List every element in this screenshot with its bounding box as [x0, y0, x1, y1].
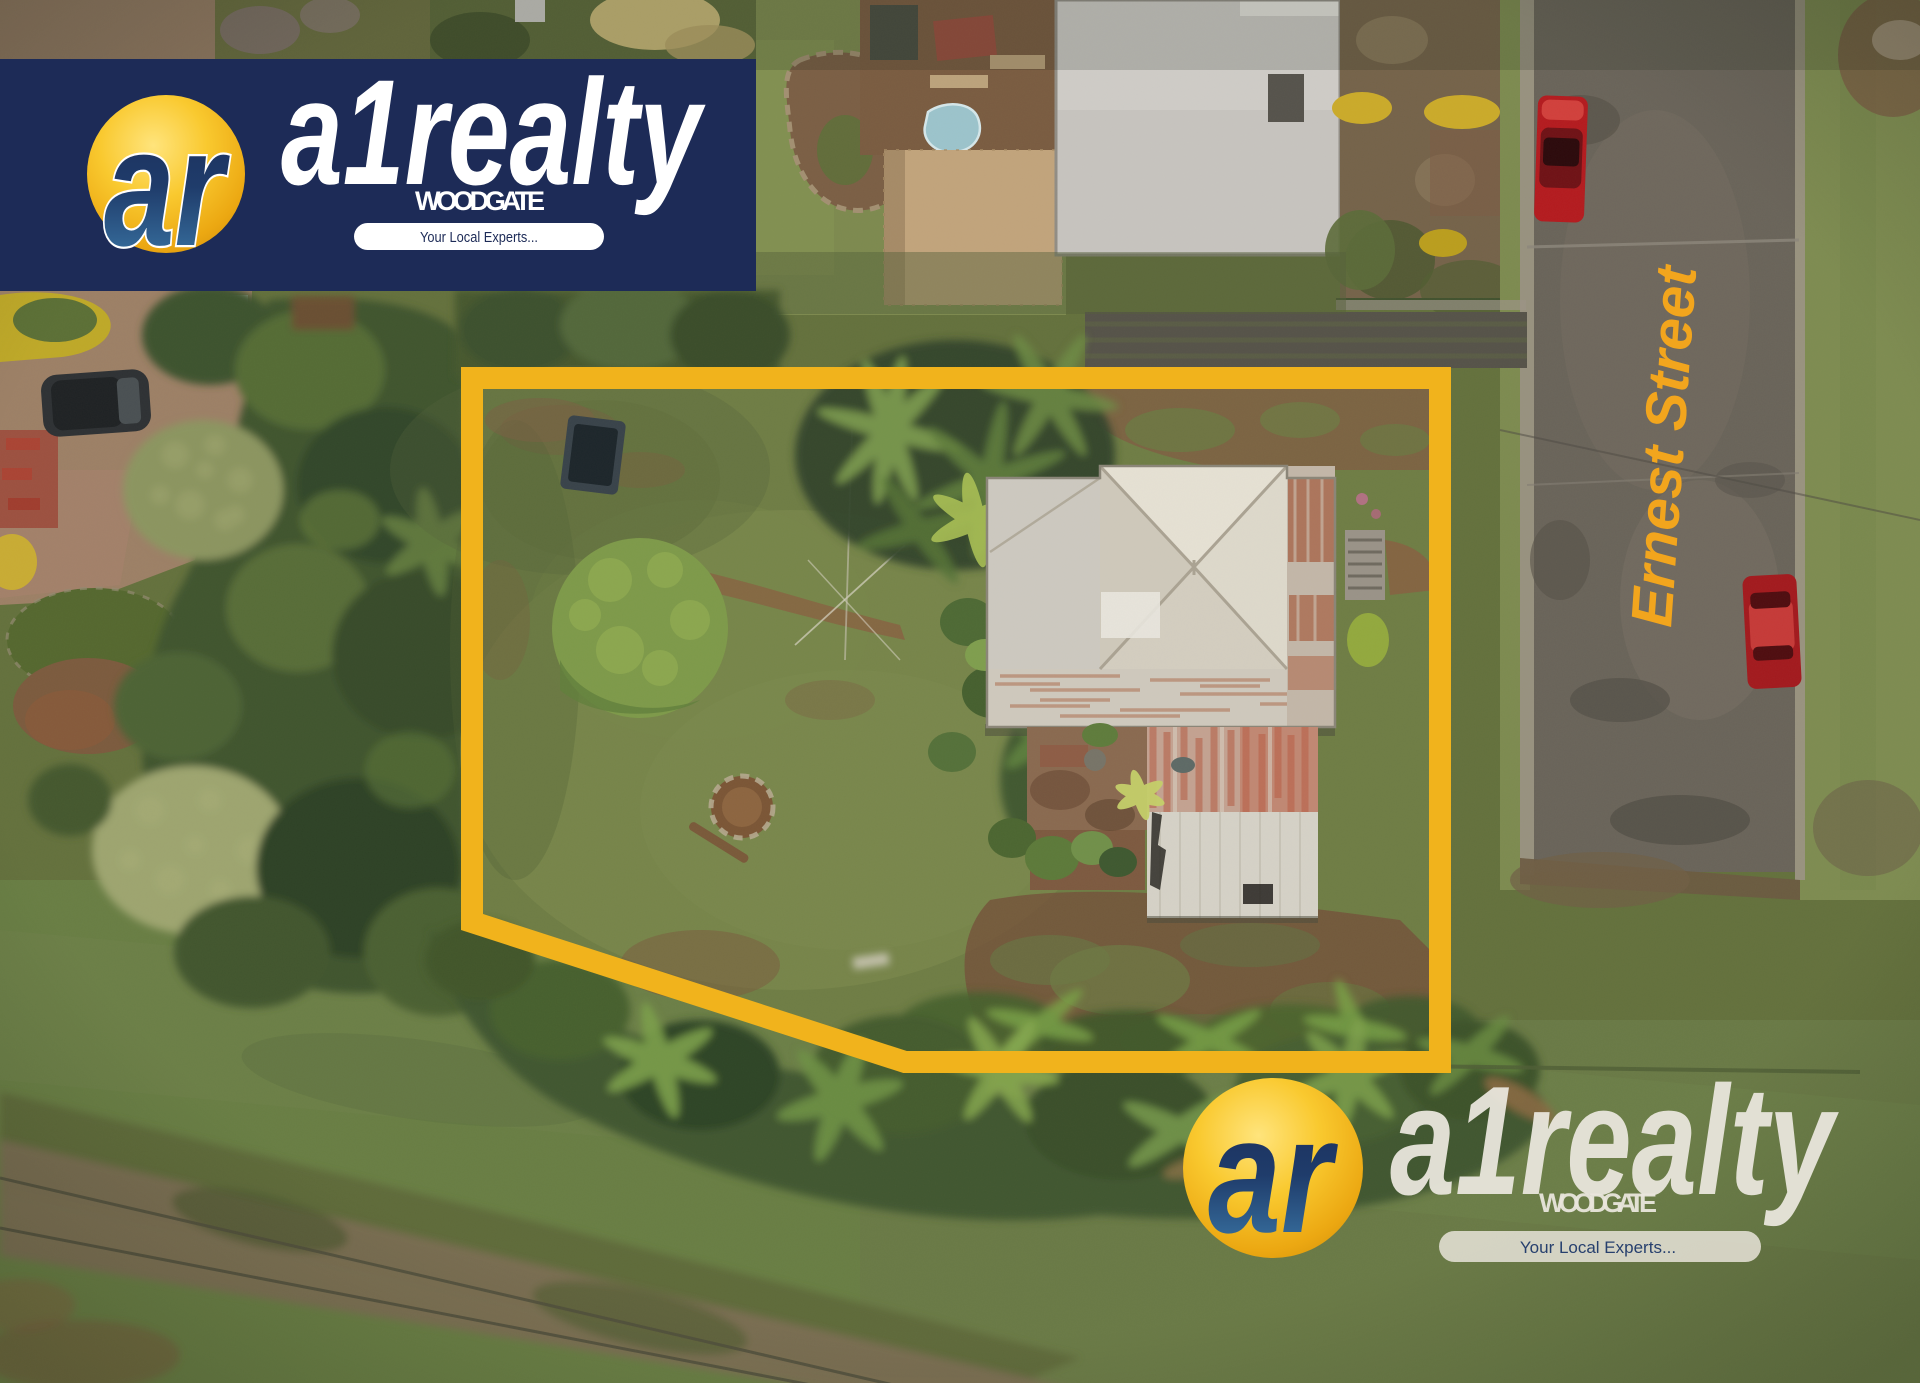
svg-text:Your Local Experts...: Your Local Experts... — [1520, 1238, 1676, 1257]
svg-text:ar: ar — [104, 93, 231, 281]
svg-text:WOODGATE: WOODGATE — [415, 186, 545, 216]
svg-text:ar: ar — [1208, 1083, 1338, 1267]
svg-text:Your Local Experts...: Your Local Experts... — [420, 229, 538, 246]
svg-text:WOODGATE: WOODGATE — [1539, 1188, 1657, 1218]
